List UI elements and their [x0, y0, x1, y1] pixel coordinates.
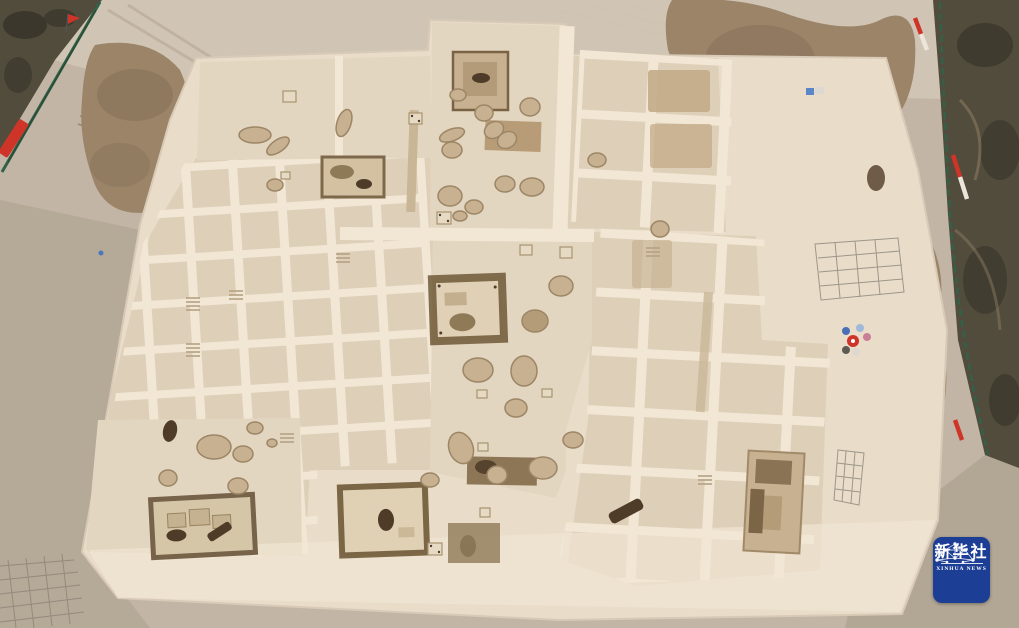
house-foundation-center — [432, 277, 504, 341]
photo-scene — [0, 0, 1019, 628]
deep-excavated-cell — [743, 451, 804, 554]
house-foundation-upper-left — [322, 157, 384, 197]
house-foundation-top — [453, 52, 508, 110]
house-foundation-bottom-left — [151, 494, 256, 557]
xinhua-news-logo: 新华社 XINHUA NEWS — [933, 537, 990, 603]
brown-patch-bottom — [448, 523, 500, 563]
network-globe-icon — [933, 540, 977, 564]
aerial-photo-excavation-site: 新华社 XINHUA NEWS — [0, 0, 1019, 628]
blue-marker-dot — [99, 251, 104, 256]
logo-english-name: XINHUA NEWS — [936, 566, 987, 572]
house-foundation-bottom-center — [340, 485, 427, 556]
equipment-top-right — [806, 87, 824, 95]
